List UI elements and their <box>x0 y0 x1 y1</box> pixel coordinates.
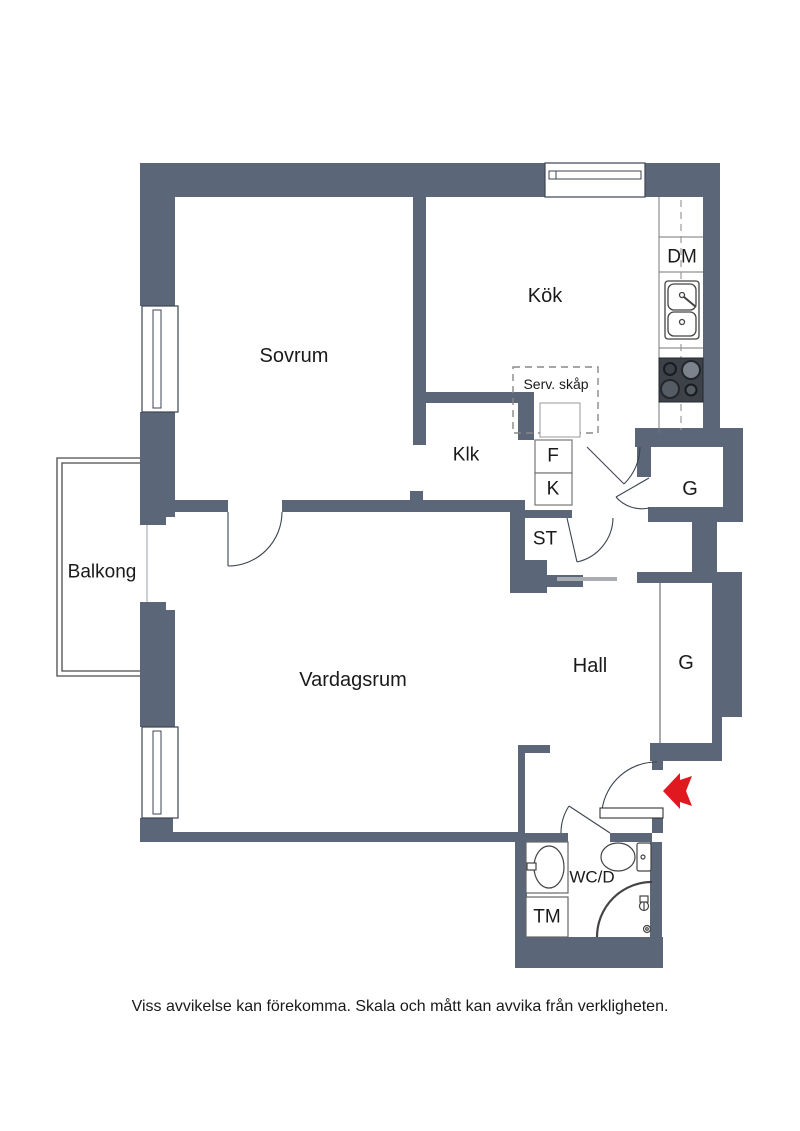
room-label-klk: Klk <box>453 446 479 465</box>
entrance-door-arc <box>602 762 657 810</box>
st-door-arc <box>577 518 613 562</box>
entrance-door-leaf <box>600 808 663 818</box>
entrance-arrow-icon <box>663 773 692 809</box>
kitchen-door-leaf <box>587 447 624 484</box>
wc-door-arc <box>561 806 569 833</box>
room-label-balkong: Balkong <box>68 563 137 582</box>
label-fridge: F <box>547 447 559 466</box>
st-door-leaf <box>567 518 577 562</box>
room-label-hall: Hall <box>573 656 607 676</box>
label-washer: TM <box>533 908 560 927</box>
sliding-door <box>557 577 617 581</box>
g1-door-arc <box>616 497 649 509</box>
vardagsrum-window <box>142 727 178 818</box>
disclaimer-text: Viss avvikelse kan förekomma. Skala och … <box>132 998 669 1016</box>
label-freezer: K <box>547 480 560 499</box>
label-dishwasher: DM <box>667 248 697 267</box>
room-label-g-hall: G <box>678 653 694 673</box>
kitchen-sink <box>665 281 699 339</box>
room-label-g-upper: G <box>682 479 698 499</box>
room-label-kok: Kök <box>528 286 562 306</box>
shower <box>597 882 652 937</box>
label-stadskap: ST <box>533 530 557 549</box>
bathroom-sink <box>526 842 568 893</box>
stove <box>659 358 703 402</box>
kitchen-window <box>545 163 645 197</box>
floorplan: Sovrum Kök Klk Balkong Vardagsrum Hall G… <box>0 0 800 1131</box>
room-label-wcd: WC/D <box>569 869 614 886</box>
sovrum-door-arc <box>228 512 282 566</box>
label-serv-skap: Serv. skåp <box>523 377 588 391</box>
room-label-sovrum: Sovrum <box>260 346 329 366</box>
sovrum-window <box>142 306 178 412</box>
room-label-vardagsrum: Vardagsrum <box>299 670 406 690</box>
